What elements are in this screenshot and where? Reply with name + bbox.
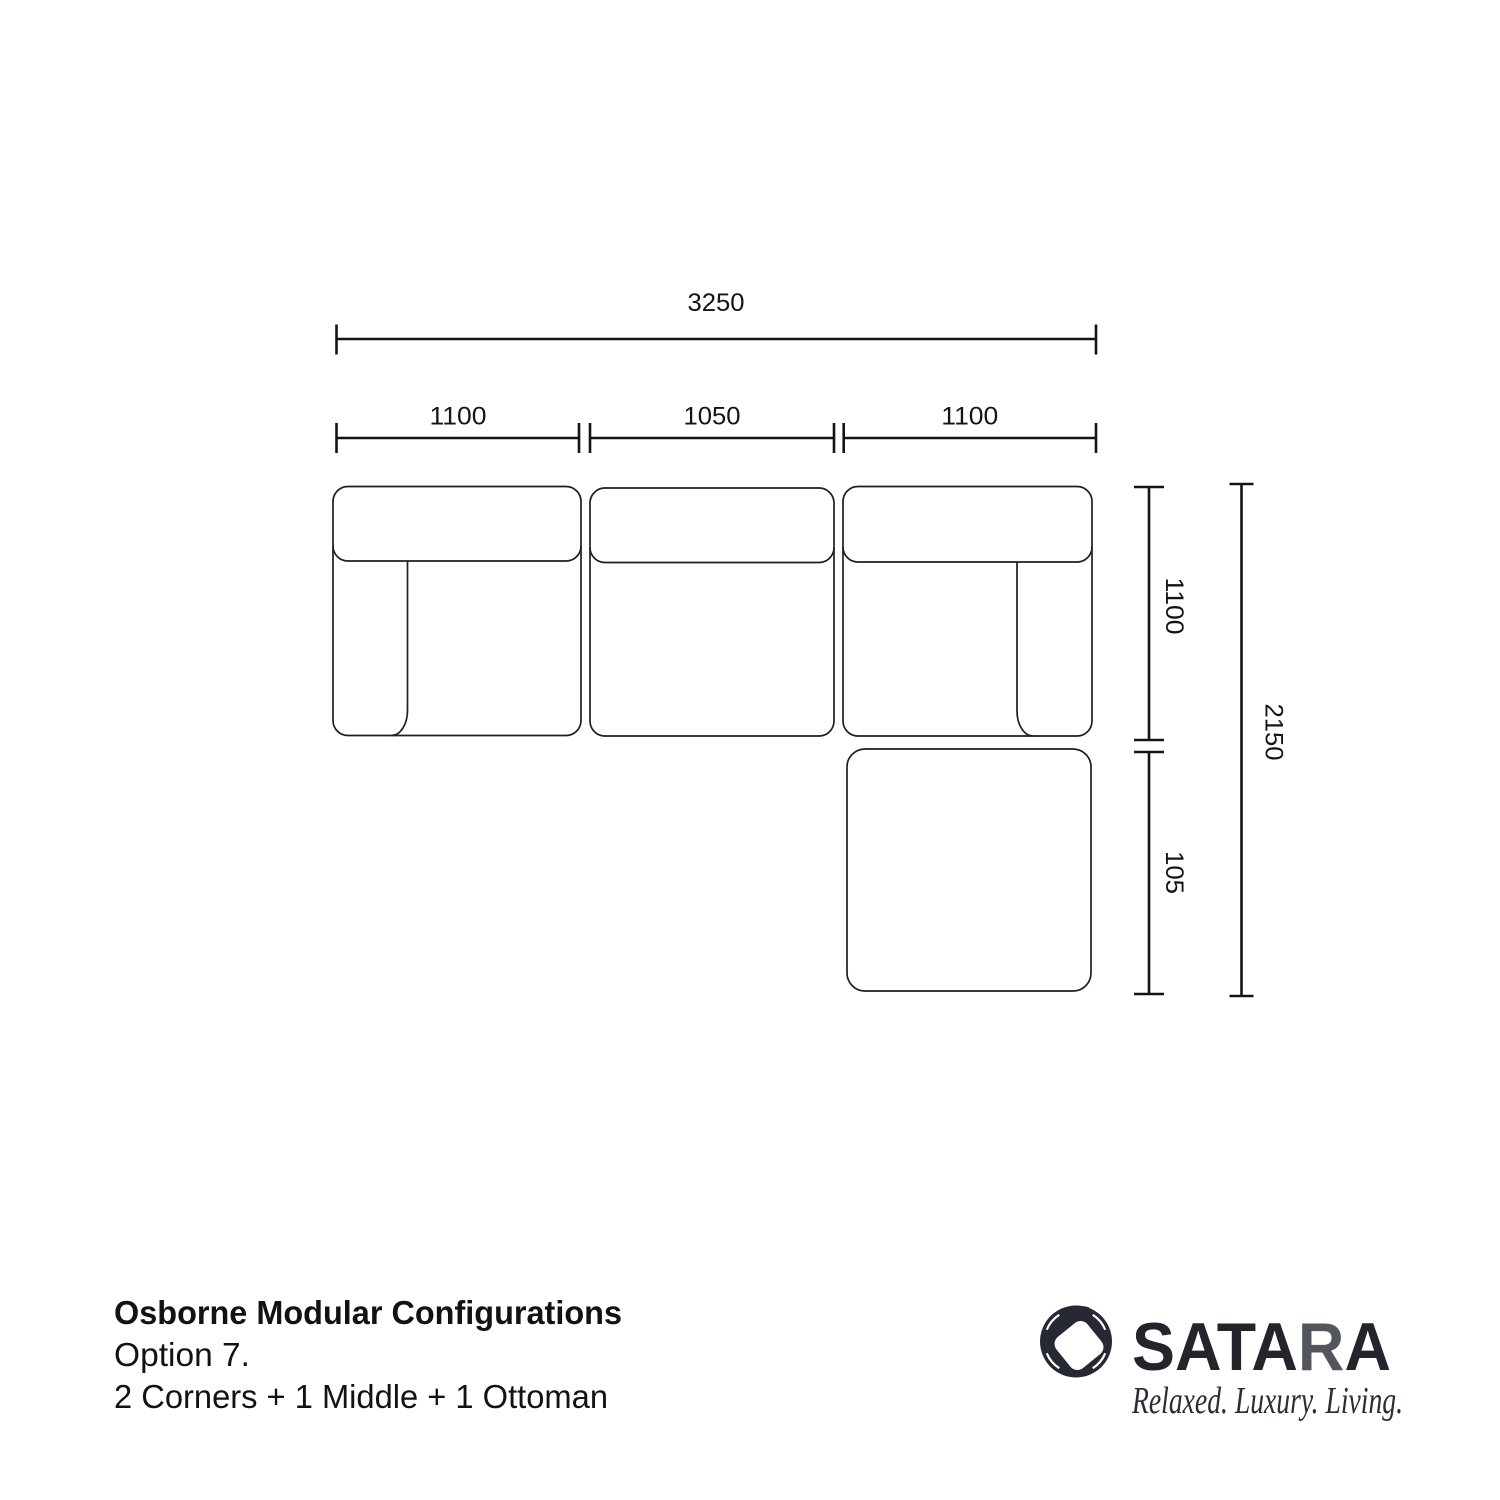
svg-text:105: 105: [1160, 851, 1188, 894]
svg-text:1050: 1050: [684, 403, 741, 431]
svg-text:2150: 2150: [1260, 704, 1288, 761]
svg-text:3250: 3250: [688, 289, 745, 317]
svg-text:SATARA: SATARA: [1132, 1309, 1391, 1385]
svg-text:1100: 1100: [941, 403, 998, 431]
svg-text:Relaxed. Luxury. Living.: Relaxed. Luxury. Living.: [1131, 1380, 1403, 1422]
svg-text:Option 7.: Option 7.: [114, 1337, 250, 1374]
svg-text:Osborne Modular Configurations: Osborne Modular Configurations: [114, 1295, 622, 1332]
svg-text:1100: 1100: [1160, 578, 1188, 635]
svg-text:1100: 1100: [430, 403, 487, 431]
svg-text:2 Corners + 1 Middle + 1 Ottom: 2 Corners + 1 Middle + 1 Ottoman: [114, 1379, 608, 1416]
